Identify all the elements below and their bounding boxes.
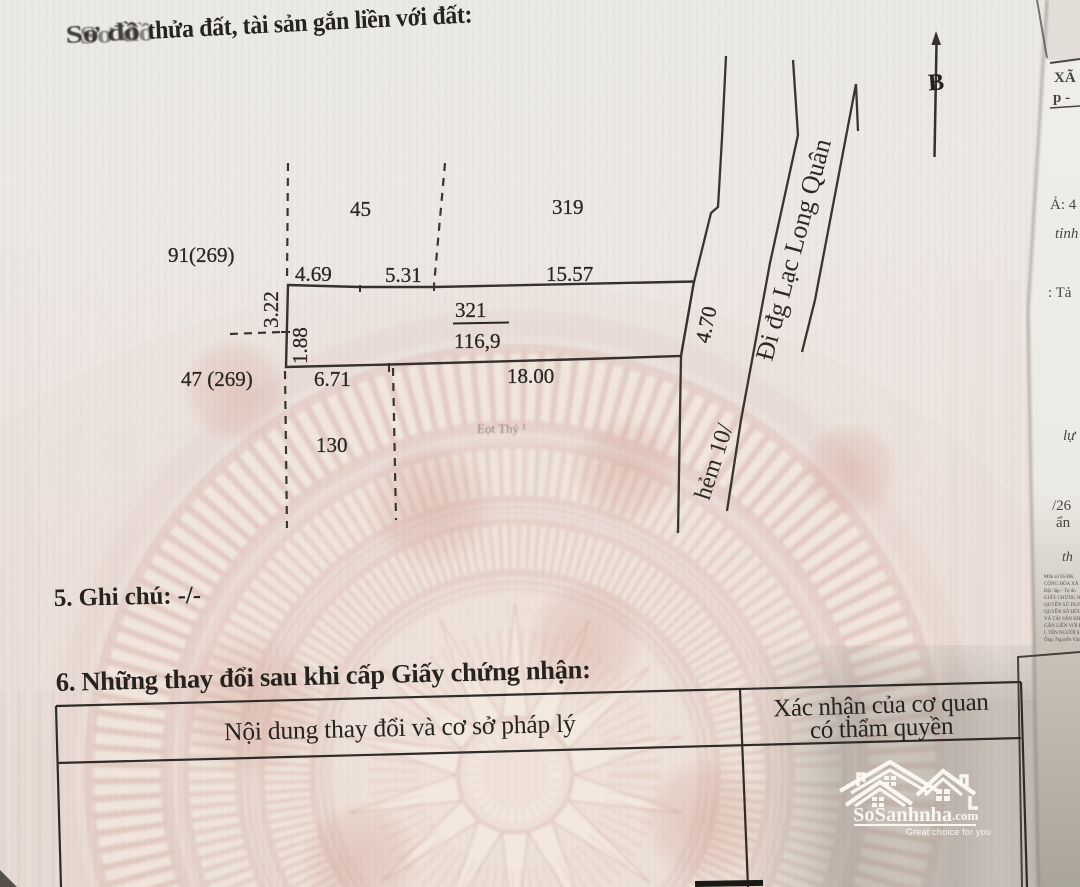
svg-text:47 (269): 47 (269)	[181, 367, 253, 391]
svg-text:QUYỀN SỞ HỮU NHÀ Ở: QUYỀN SỞ HỮU NHÀ Ở	[1044, 609, 1080, 615]
svg-text:QUYỀN SỬ DỤNG ĐẤT: QUYỀN SỬ DỤNG ĐẤT	[1044, 602, 1080, 608]
svg-text:GIẤY CHỨNG NHẬN: GIẤY CHỨNG NHẬN	[1044, 595, 1080, 601]
svg-text:có thẩm quyền: có thẩm quyền	[810, 713, 955, 745]
svg-text:6.71: 6.71	[314, 367, 351, 391]
svg-text:I. TÊN NGƯỜI SỬ DỤNG: I. TÊN NGƯỜI SỬ DỤNG	[1044, 630, 1080, 636]
svg-text:tỉnh: tỉnh	[1055, 226, 1078, 242]
svg-text:319: 319	[552, 195, 584, 219]
svg-text:116,9: 116,9	[454, 329, 500, 353]
svg-text:1.88: 1.88	[288, 327, 312, 364]
svg-text:Độc lập - Tự do: Độc lập - Tự do	[1044, 589, 1076, 594]
svg-text:130: 130	[316, 433, 348, 457]
svg-text:VÀ TÀI SẢN KHÁC: VÀ TÀI SẢN KHÁC	[1044, 616, 1080, 622]
svg-text:th: th	[1062, 550, 1073, 565]
svg-text:Sơ đồ: Sơ đồ	[79, 17, 154, 50]
svg-text:XÃ: XÃ	[1054, 68, 1076, 86]
svg-text:3.22: 3.22	[259, 291, 283, 328]
svg-text:18.00: 18.00	[507, 364, 554, 388]
svg-text:45: 45	[350, 197, 371, 221]
svg-text:15.57: 15.57	[546, 262, 593, 286]
svg-text:Mẫu số 05/ĐK: Mẫu số 05/ĐK	[1044, 574, 1074, 580]
svg-text:CỘNG HÒA XÃ HỘI: CỘNG HÒA XÃ HỘI	[1044, 581, 1080, 587]
svg-text:lự: lự	[1063, 428, 1077, 444]
svg-text:91(269): 91(269)	[168, 243, 235, 267]
svg-text:/26: /26	[1052, 498, 1072, 514]
svg-text:4.69: 4.69	[295, 262, 332, 286]
svg-text:321: 321	[455, 298, 487, 322]
svg-text:Ả: 4: Ả: 4	[1050, 196, 1077, 213]
svg-text:: Tả: : Tả	[1048, 285, 1072, 301]
svg-text:ẩn: ẩn	[1056, 515, 1071, 531]
svg-text:5.31: 5.31	[385, 263, 422, 287]
svg-text:B: B	[927, 69, 945, 96]
svg-text:Great choice for you: Great choice for you	[906, 827, 991, 837]
svg-text:GẮN LIỀN VỚI ĐẤT: GẮN LIỀN VỚI ĐẤT	[1044, 622, 1080, 629]
svg-text:p -: p -	[1053, 90, 1070, 106]
svg-text:.com: .com	[952, 808, 979, 823]
svg-text:Eọt Thỷ ¹: Eọt Thỷ ¹	[477, 421, 526, 436]
svg-text:5. Ghi chú: -/-: 5. Ghi chú: -/-	[54, 582, 202, 612]
svg-text:SoSanhnha: SoSanhnha	[853, 804, 952, 826]
svg-text:Ông: Nguyễn Văn: Ông: Nguyễn Văn	[1044, 637, 1080, 643]
